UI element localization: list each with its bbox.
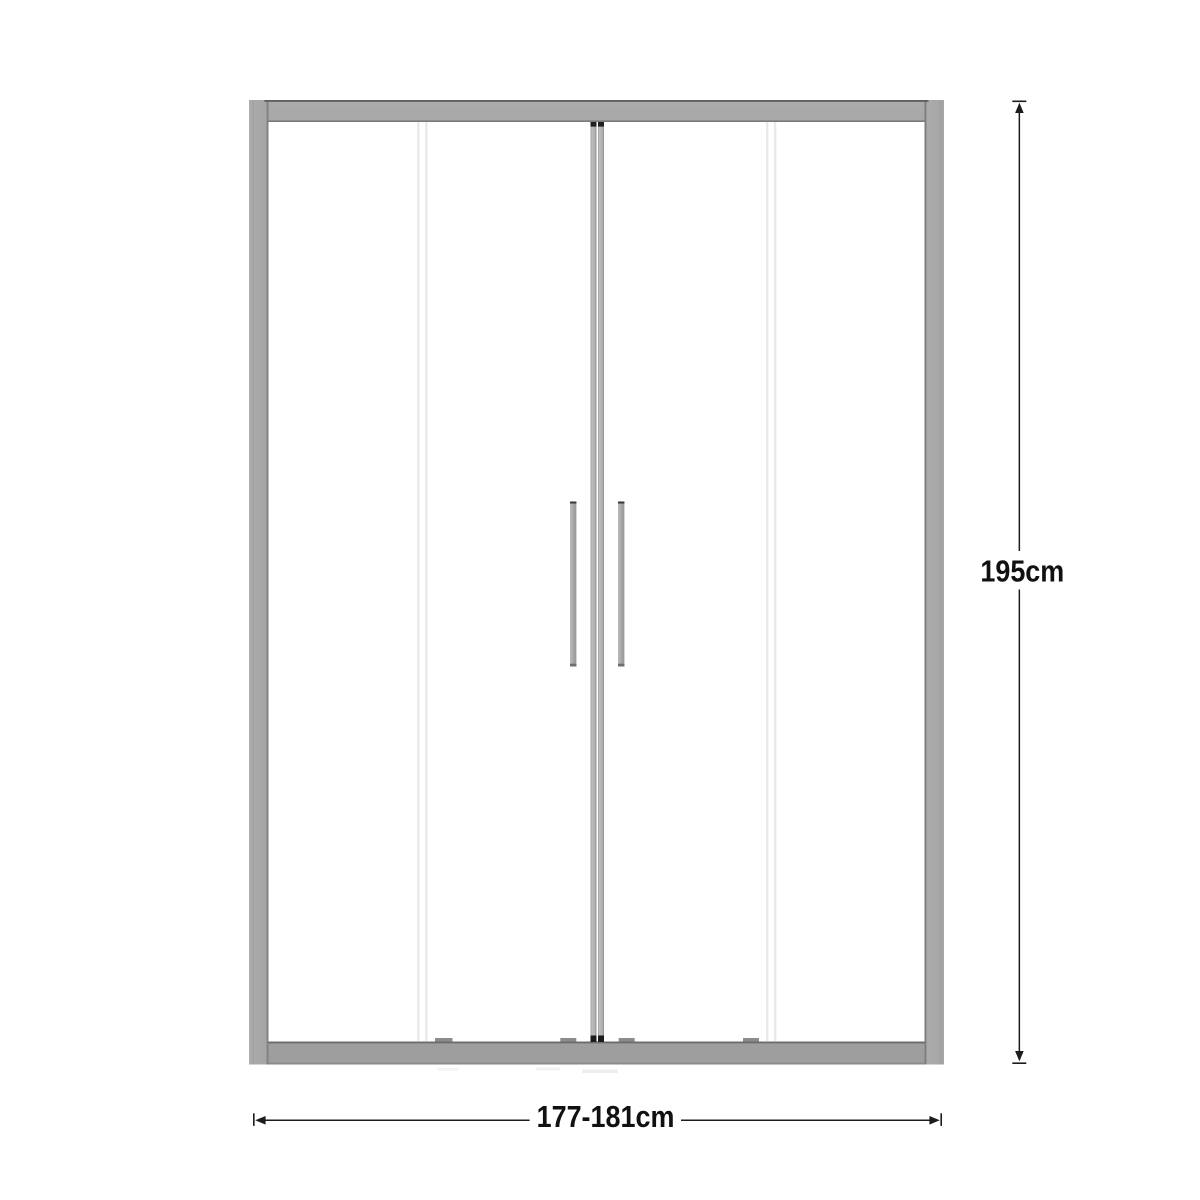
svg-text:177-181cm: 177-181cm xyxy=(537,1100,675,1134)
svg-text:195cm: 195cm xyxy=(980,555,1064,589)
